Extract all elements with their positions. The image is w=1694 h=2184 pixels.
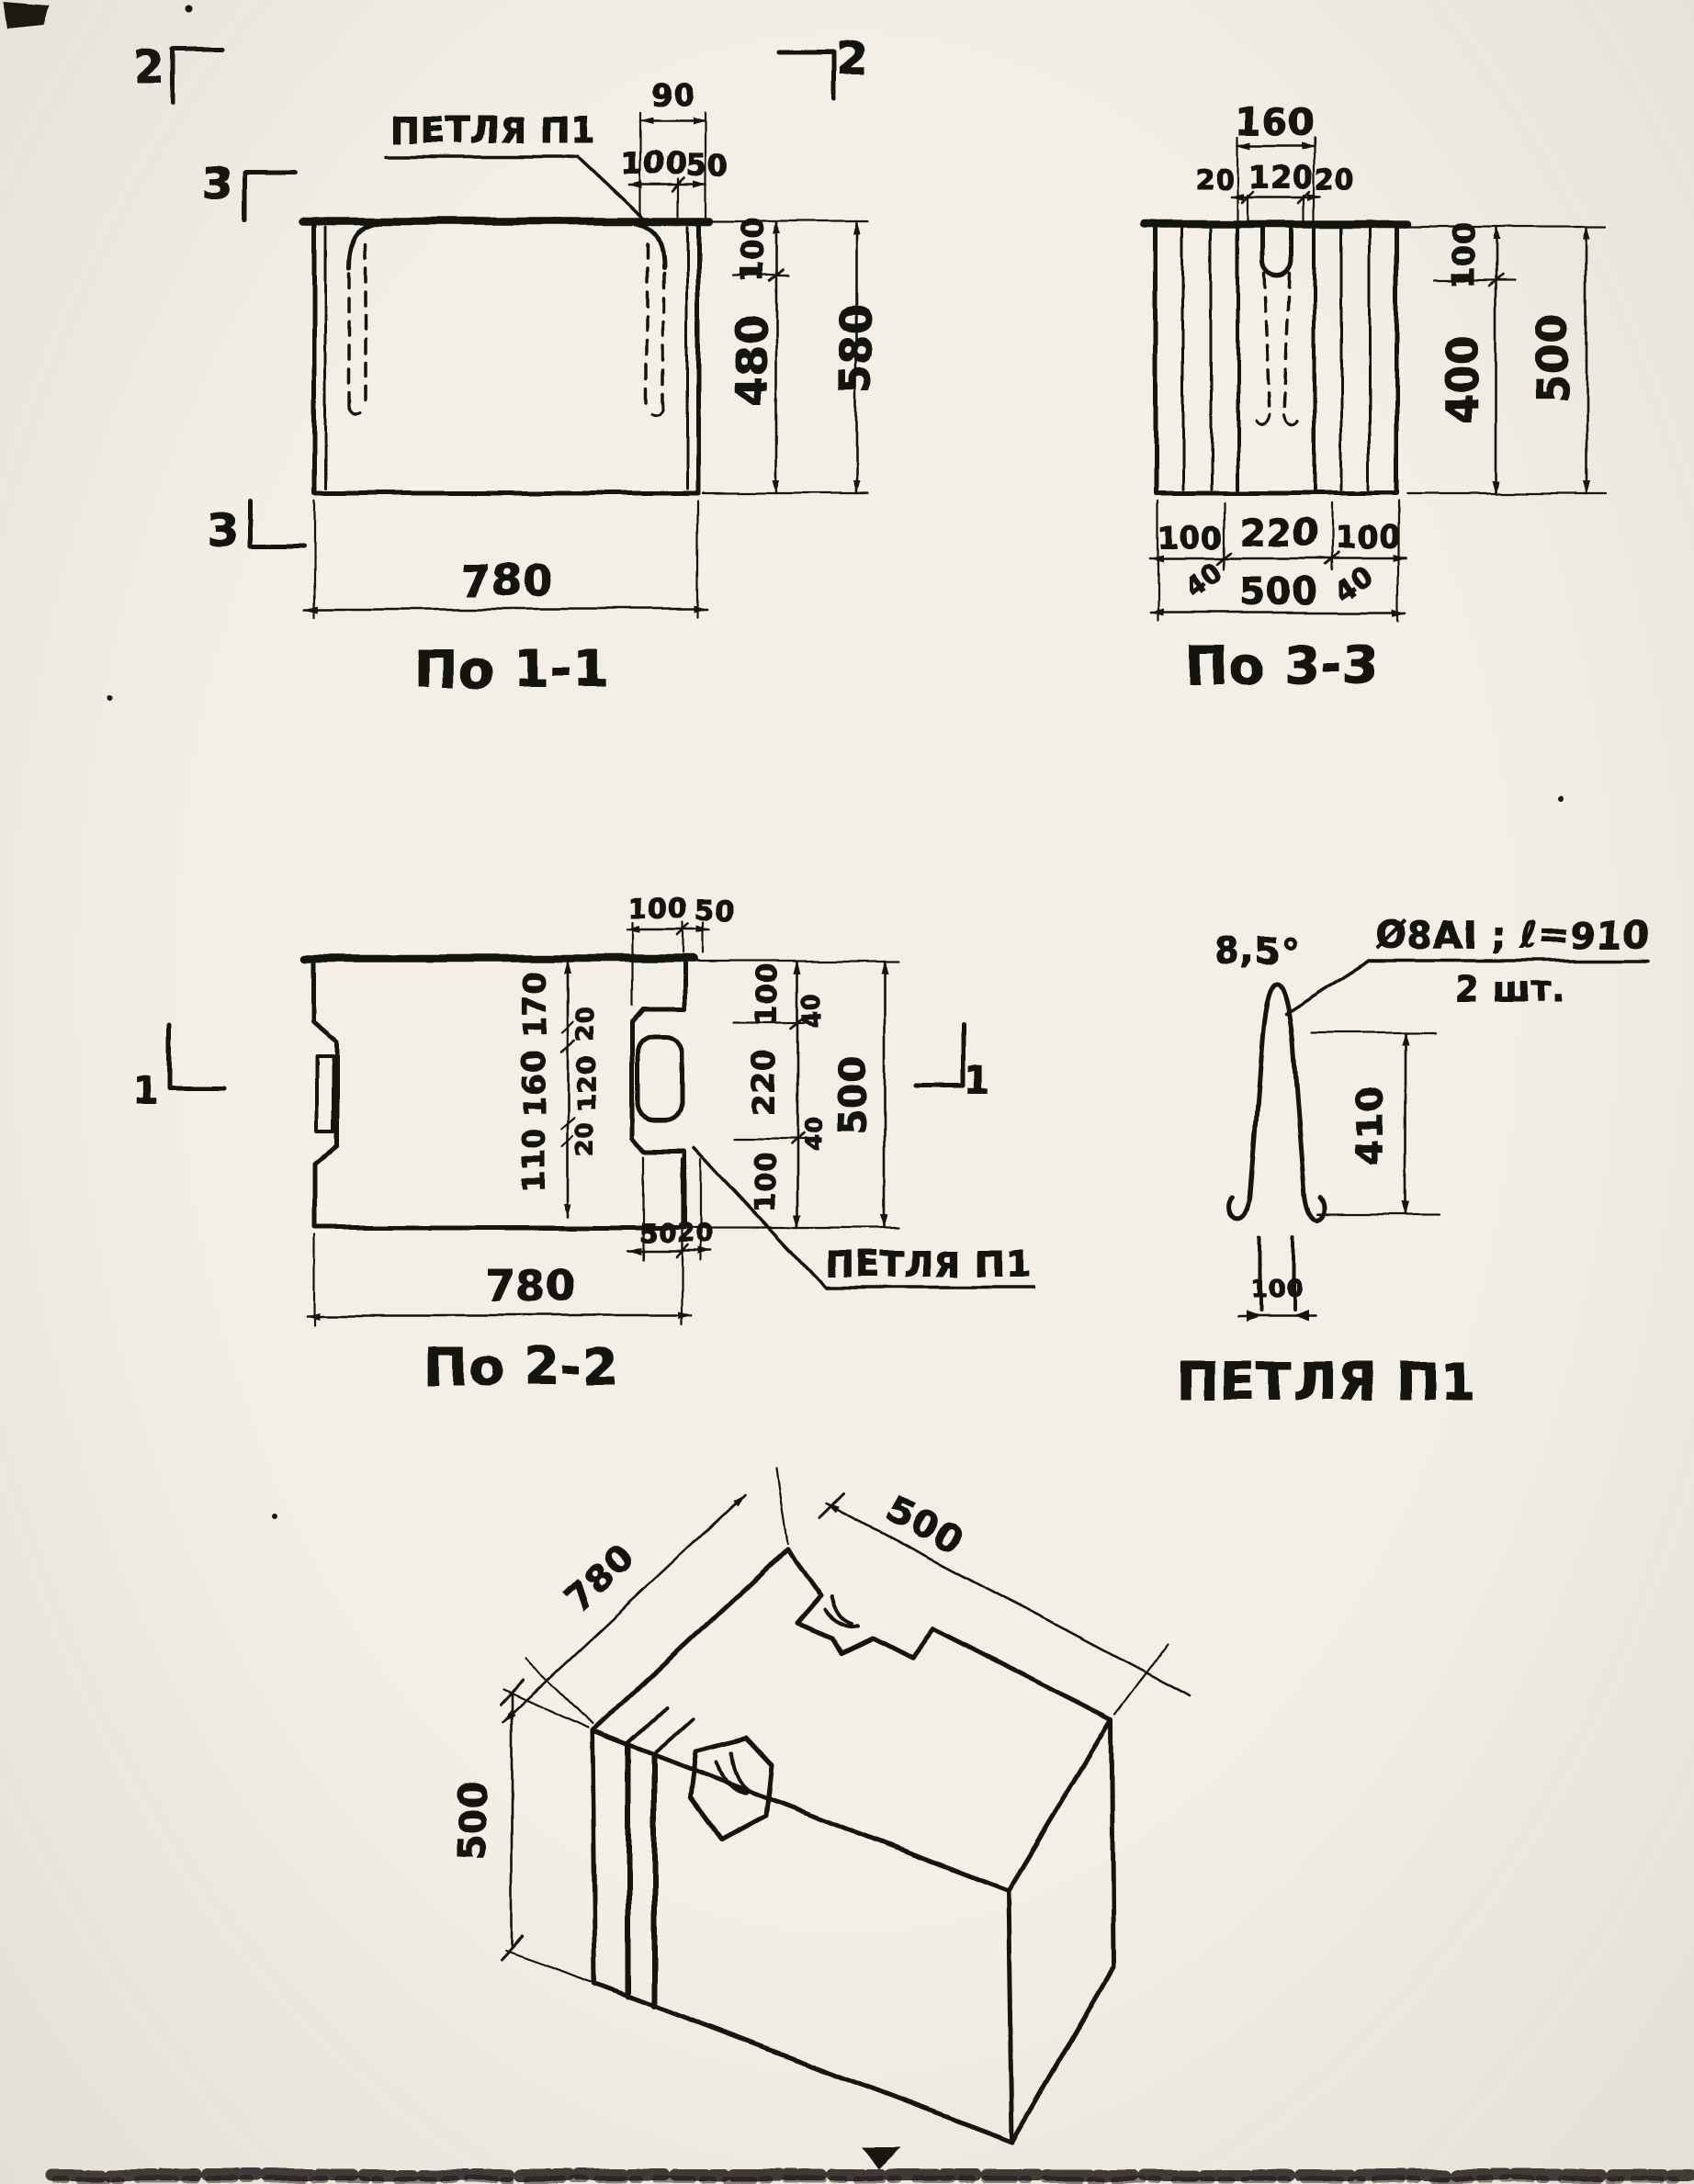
scan-noise-overlay — [0, 0, 1694, 2184]
drawing-sheet-svg: ПЕТЛЯ П1 90 100 50 100 480 580 780 — [0, 0, 1694, 2184]
blueprint-sheet: ПЕТЛЯ П1 90 100 50 100 480 580 780 — [0, 0, 1694, 2184]
